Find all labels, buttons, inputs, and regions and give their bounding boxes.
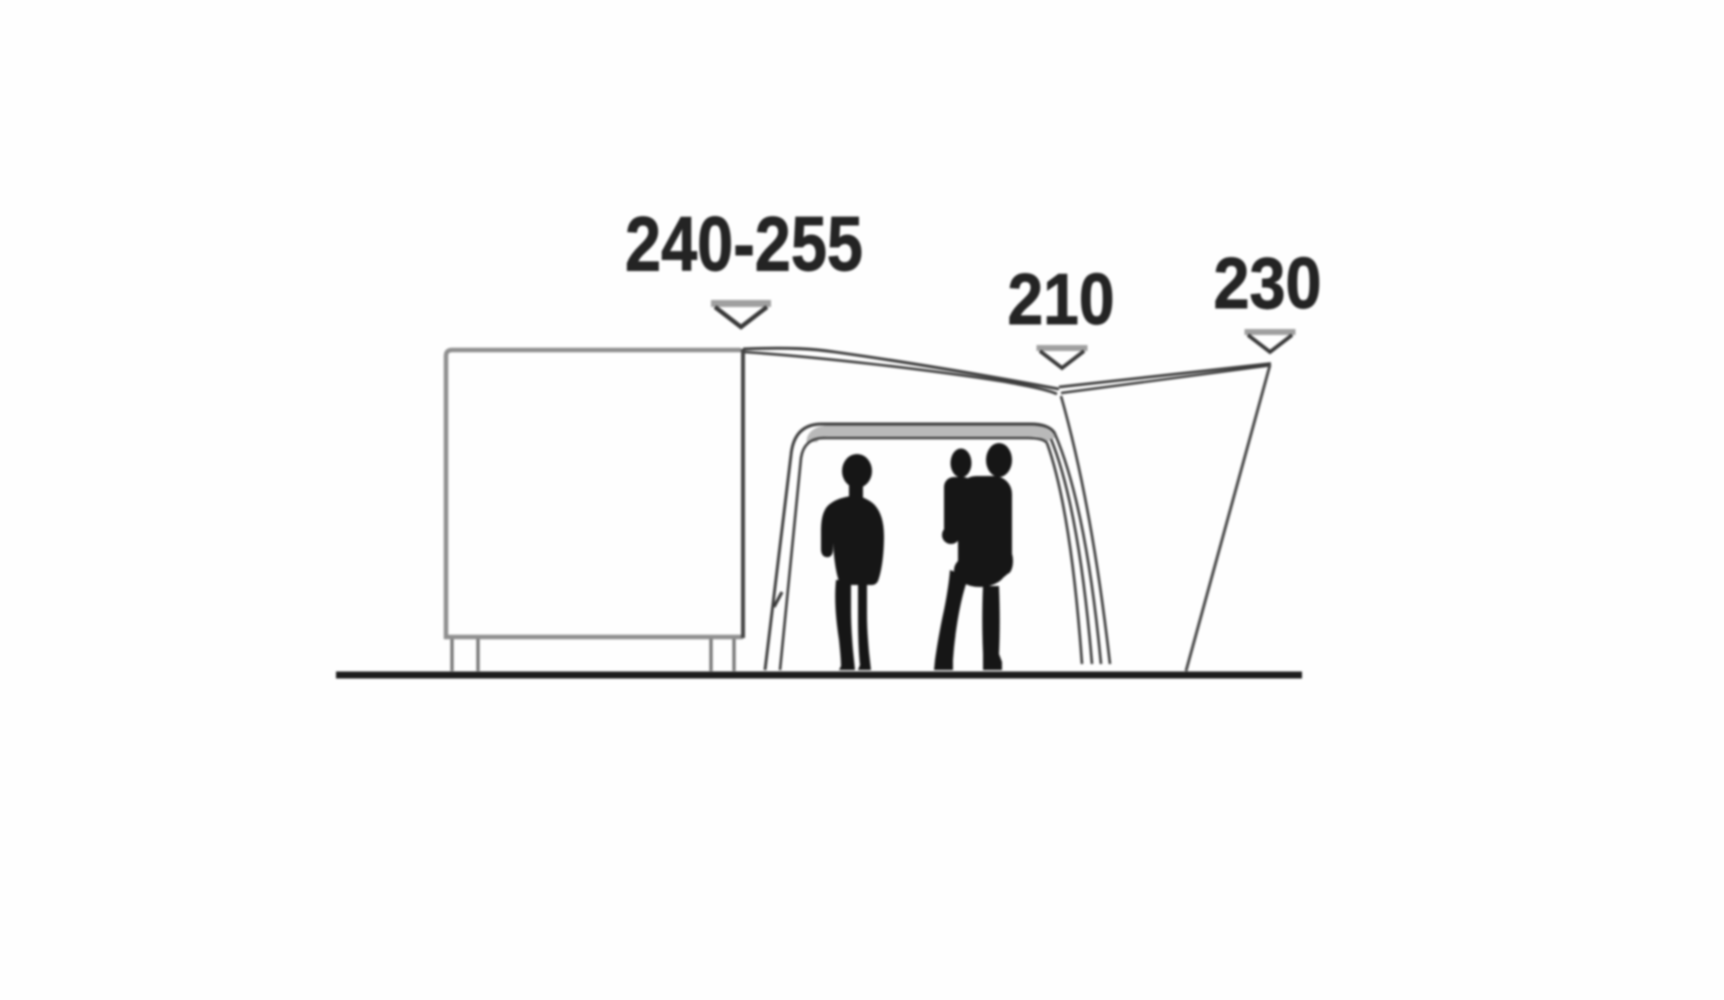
svg-text:210: 210 <box>1008 260 1115 340</box>
svg-text:230: 230 <box>1214 244 1322 324</box>
svg-text:240-255: 240-255 <box>625 202 863 288</box>
